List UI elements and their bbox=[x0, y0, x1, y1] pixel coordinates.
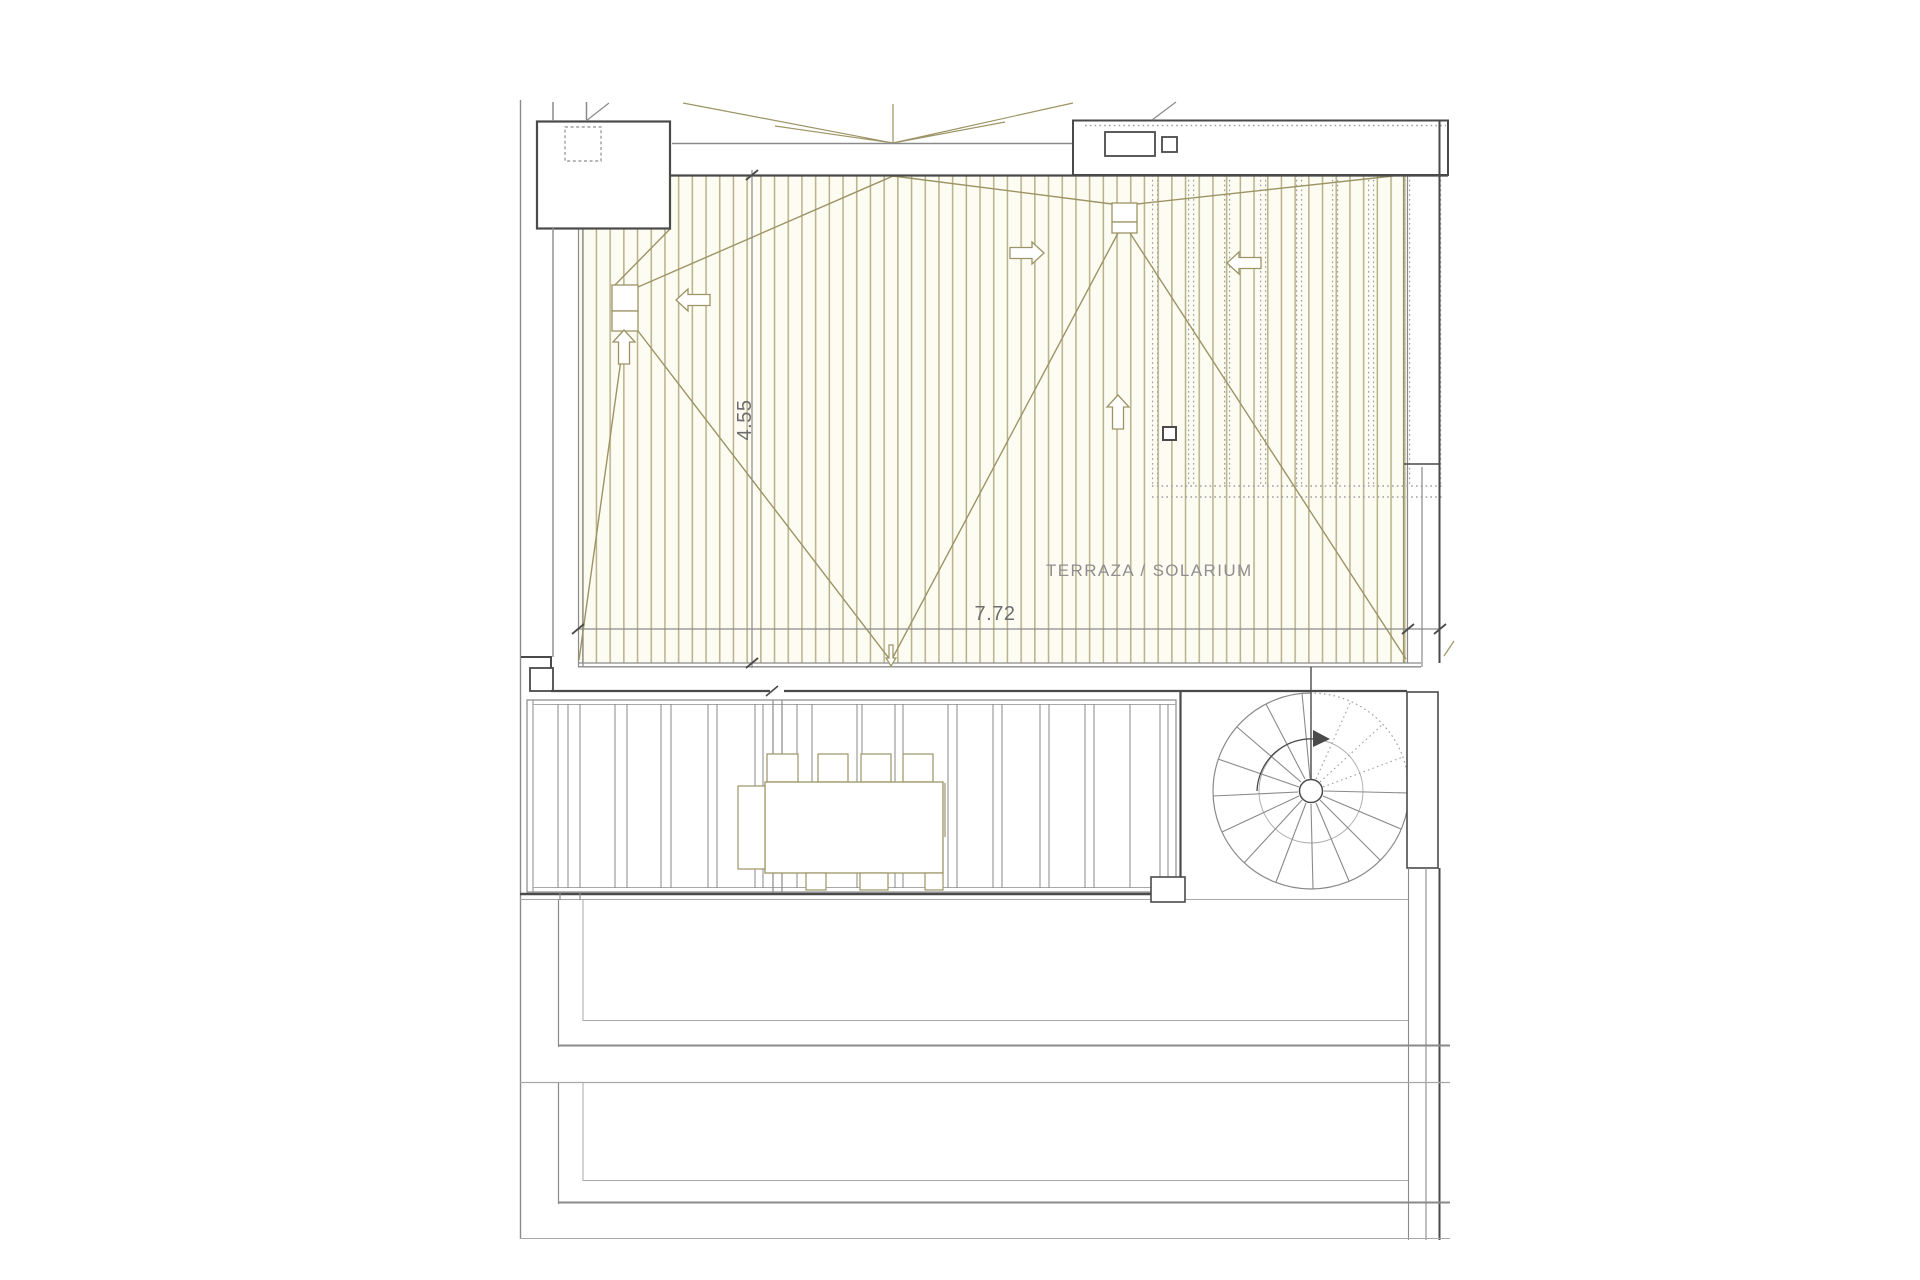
chair bbox=[806, 873, 826, 890]
left-step bbox=[530, 668, 553, 691]
chair bbox=[818, 754, 848, 782]
dimension-depth-label: 4.55 bbox=[734, 400, 756, 441]
chimney-box bbox=[537, 102, 670, 229]
spiral-staircase bbox=[1213, 667, 1409, 889]
floor-plan-drawing: 4.55 7.72 TERRAZA / SOLARIUM bbox=[0, 0, 1920, 1280]
lower-balcony-bands bbox=[520, 877, 1450, 1239]
table bbox=[765, 782, 943, 873]
right-pillar bbox=[1407, 692, 1438, 868]
vent-box bbox=[1162, 137, 1177, 152]
deck-pergola bbox=[520, 686, 1407, 894]
left-boundary-wall bbox=[521, 100, 554, 1239]
room-label: TERRAZA / SOLARIUM bbox=[1046, 561, 1253, 580]
floor-plan-sheet: 4.55 7.72 TERRAZA / SOLARIUM bbox=[0, 0, 1920, 1280]
chair bbox=[903, 754, 933, 782]
chair bbox=[767, 754, 798, 782]
dimension-width-label: 7.72 bbox=[975, 603, 1016, 625]
chair bbox=[925, 873, 943, 890]
chair bbox=[860, 873, 888, 890]
stair-treads-above bbox=[1316, 701, 1403, 787]
stair-newel bbox=[1300, 780, 1323, 803]
deck-corner-pillar bbox=[1151, 877, 1185, 902]
rooflight-box bbox=[1105, 132, 1155, 156]
chair bbox=[738, 786, 765, 869]
dining-table-and-chairs bbox=[738, 754, 945, 890]
roof-skylight-box bbox=[1163, 427, 1176, 440]
chair bbox=[861, 754, 891, 782]
stair-direction-arrow-icon bbox=[1313, 730, 1330, 747]
top-parapet bbox=[670, 102, 1448, 176]
